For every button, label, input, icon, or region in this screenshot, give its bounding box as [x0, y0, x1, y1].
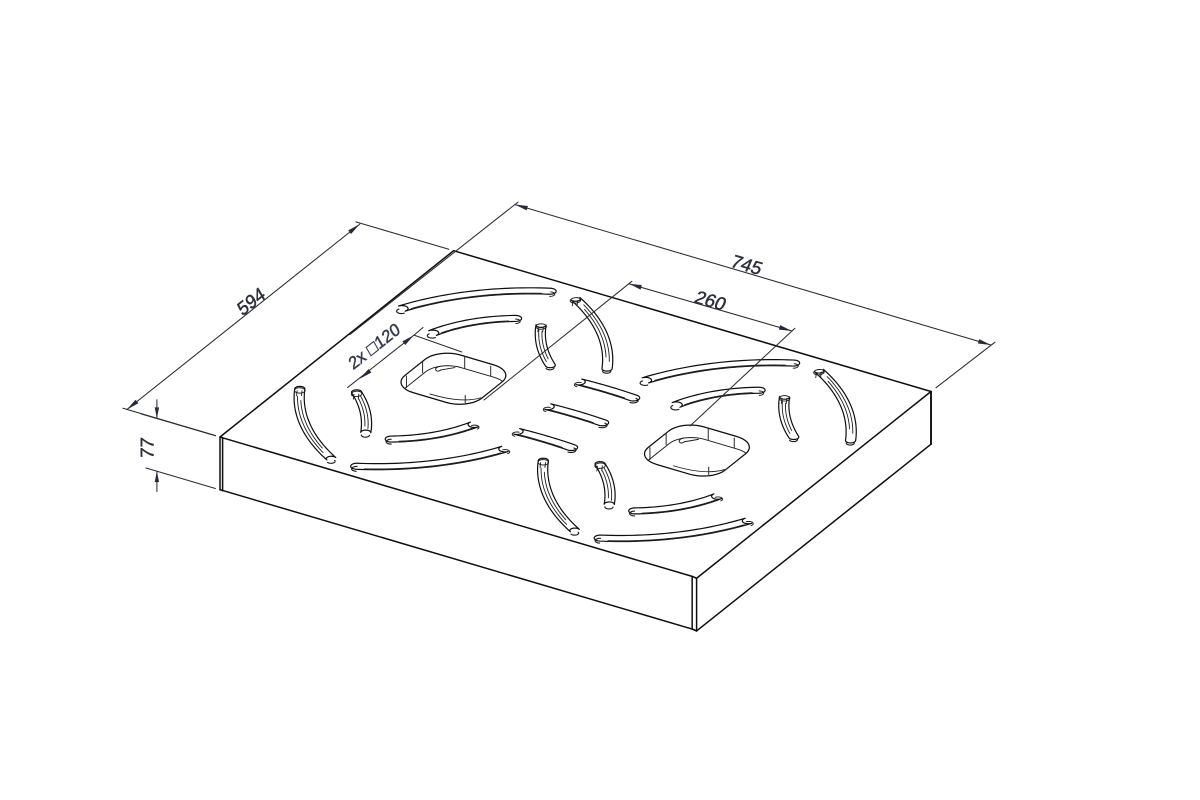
- svg-text:77: 77: [137, 436, 158, 460]
